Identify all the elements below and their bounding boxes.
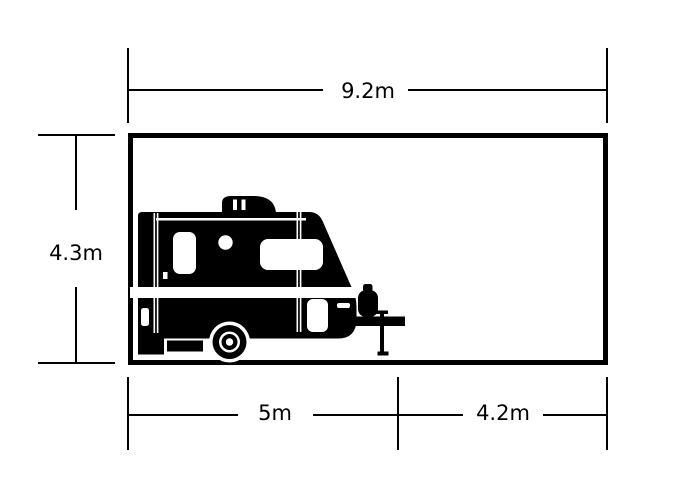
jack-stem [380,312,384,352]
caravan-parking-diagram: 9.2m 4.3m 5m 4.2m [0,0,675,485]
door [307,299,328,332]
tank-body [358,290,378,317]
tail-light [141,308,149,326]
caravan-shape [130,196,405,363]
wheel [209,322,250,363]
roof-vent-slit [233,200,237,211]
body-seam [154,213,156,333]
body-seam [300,212,302,332]
roof-pinstripe [156,218,306,221]
hitch-bar [352,317,405,327]
body-seam [157,213,159,333]
hub-center [226,338,233,345]
porthole-window [218,235,232,249]
roof-vent-slit [242,200,246,211]
side-marker [163,272,168,279]
caravan-icon [0,0,675,485]
roof-vent [222,196,276,213]
front-window [260,239,323,270]
door-handle [337,303,350,308]
side-stripe [130,287,360,298]
body-seam [297,212,299,332]
jack-foot [378,352,389,356]
entry-step [167,341,203,352]
tank-cap [363,284,373,292]
propane-tank [358,284,378,317]
rear-window [173,232,196,274]
